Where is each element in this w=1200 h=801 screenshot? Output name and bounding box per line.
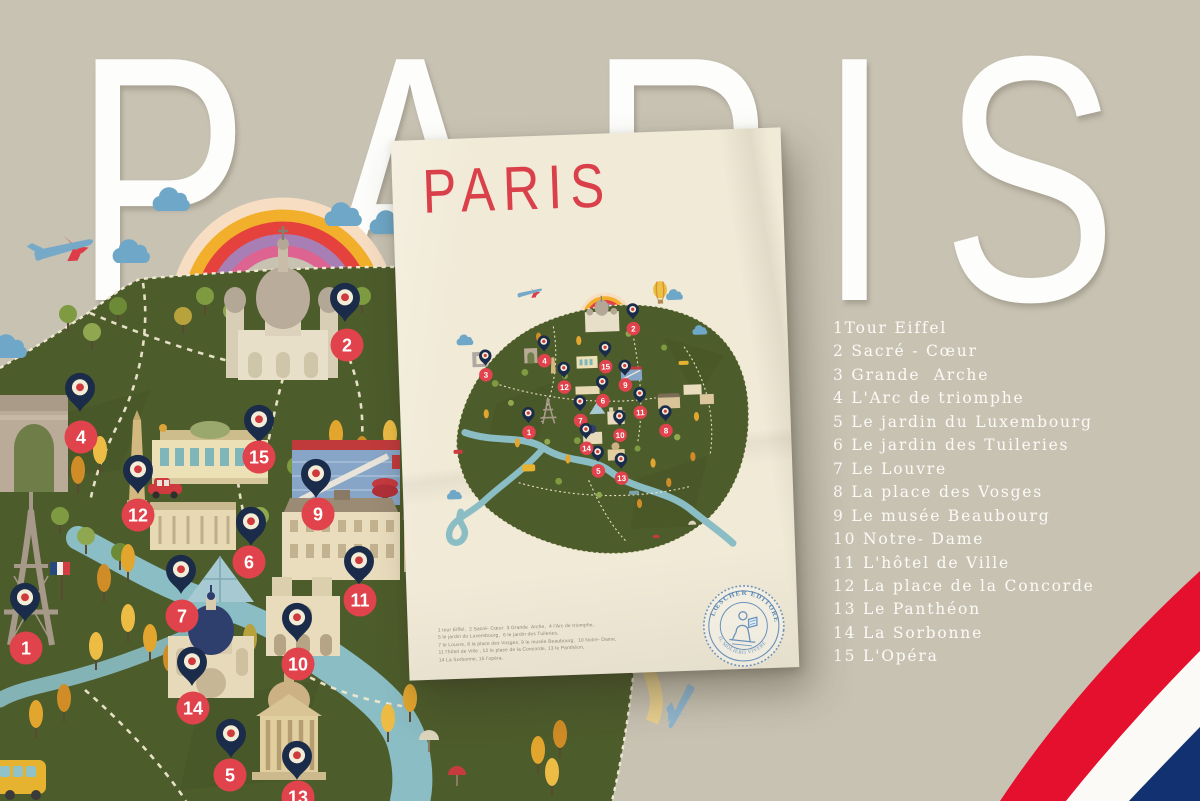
svg-text:3: 3 bbox=[484, 371, 489, 380]
mini-plane-icon bbox=[516, 284, 543, 302]
marker-number-badge: 4 bbox=[65, 421, 98, 454]
svg-text:15: 15 bbox=[601, 362, 611, 371]
legend-item: 1Tour Eiffel bbox=[833, 317, 1095, 340]
svg-text:1: 1 bbox=[527, 428, 532, 437]
legend-item: 2 Sacré - Cœur bbox=[833, 340, 1095, 363]
publisher-stamp: LŒSCHER EDITORE IL MOLIERO VIVERE bbox=[697, 579, 792, 674]
legend-item: 5 Le jardin du Luxembourg bbox=[833, 411, 1095, 434]
legend-item: 10 Notre- Dame bbox=[833, 528, 1095, 551]
bus-illustration bbox=[0, 760, 46, 800]
marker-number-badge: 11 bbox=[344, 584, 377, 617]
svg-text:9: 9 bbox=[623, 381, 628, 390]
svg-text:4: 4 bbox=[542, 357, 547, 366]
svg-text:2: 2 bbox=[631, 324, 636, 333]
marker-number-badge: 5 bbox=[214, 759, 247, 792]
svg-text:8: 8 bbox=[664, 426, 669, 435]
svg-text:6: 6 bbox=[601, 397, 606, 406]
marker-number-badge: 14 bbox=[177, 692, 210, 725]
marker-number-badge: 2 bbox=[331, 329, 364, 362]
svg-text:14: 14 bbox=[183, 698, 203, 718]
svg-text:9: 9 bbox=[313, 504, 323, 524]
poster-title: PARIS bbox=[421, 155, 613, 224]
poster: PARIS bbox=[391, 127, 800, 680]
marker-number-badge: 7 bbox=[166, 600, 199, 633]
svg-text:12: 12 bbox=[560, 383, 570, 392]
legend-item: 6 Le jardin des Tuileries bbox=[833, 434, 1095, 457]
legend-item: 9 Le musée Beaubourg bbox=[833, 505, 1095, 528]
poster-mini-map: 123456789101112131415 bbox=[432, 274, 764, 587]
plane-icon bbox=[26, 229, 97, 272]
mini-balloon-icon bbox=[653, 281, 668, 304]
legend-item: 4 L'Arc de triomphe bbox=[833, 387, 1095, 410]
svg-text:11: 11 bbox=[350, 590, 369, 610]
legend-item: 3 Grande Arche bbox=[833, 364, 1095, 387]
svg-text:10: 10 bbox=[288, 654, 308, 674]
svg-text:6: 6 bbox=[244, 552, 254, 572]
cloud-icon bbox=[153, 187, 190, 211]
svg-text:4: 4 bbox=[76, 427, 86, 447]
cloud-icon bbox=[0, 334, 27, 358]
marker-number-badge: 10 bbox=[282, 648, 315, 681]
svg-text:13: 13 bbox=[288, 787, 308, 801]
svg-text:2: 2 bbox=[342, 335, 352, 355]
svg-text:7: 7 bbox=[177, 606, 187, 626]
svg-text:13: 13 bbox=[617, 474, 627, 483]
svg-text:11: 11 bbox=[636, 408, 645, 417]
svg-text:12: 12 bbox=[128, 505, 148, 525]
legend-item: 7 Le Louvre bbox=[833, 458, 1095, 481]
arc-de-triomphe-illustration bbox=[0, 395, 68, 492]
marker-number-badge: 6 bbox=[233, 546, 266, 579]
marker-number-badge: 9 bbox=[302, 498, 335, 531]
plane-icon-small bbox=[659, 680, 700, 733]
svg-text:15: 15 bbox=[249, 447, 269, 467]
svg-text:1: 1 bbox=[21, 638, 31, 658]
svg-text:5: 5 bbox=[596, 467, 601, 476]
svg-text:14: 14 bbox=[582, 444, 592, 453]
poster-legend: 1 tour Eiffel, 2 Sacré- Cœur 3 Grande Ar… bbox=[438, 621, 617, 664]
road-band bbox=[648, 668, 656, 722]
cloud-icon bbox=[325, 202, 362, 226]
french-flag-corner bbox=[900, 571, 1200, 801]
svg-text:5: 5 bbox=[225, 765, 235, 785]
marker-number-badge: 12 bbox=[122, 499, 155, 532]
marker-number-badge: 1 bbox=[10, 632, 43, 665]
svg-text:10: 10 bbox=[616, 431, 626, 440]
legend-item: 8 La place des Vosges bbox=[833, 481, 1095, 504]
cloud-icon bbox=[113, 239, 150, 263]
marker-number-badge: 15 bbox=[243, 441, 276, 474]
paris-poster-mockup: P A R I S bbox=[0, 0, 1200, 801]
